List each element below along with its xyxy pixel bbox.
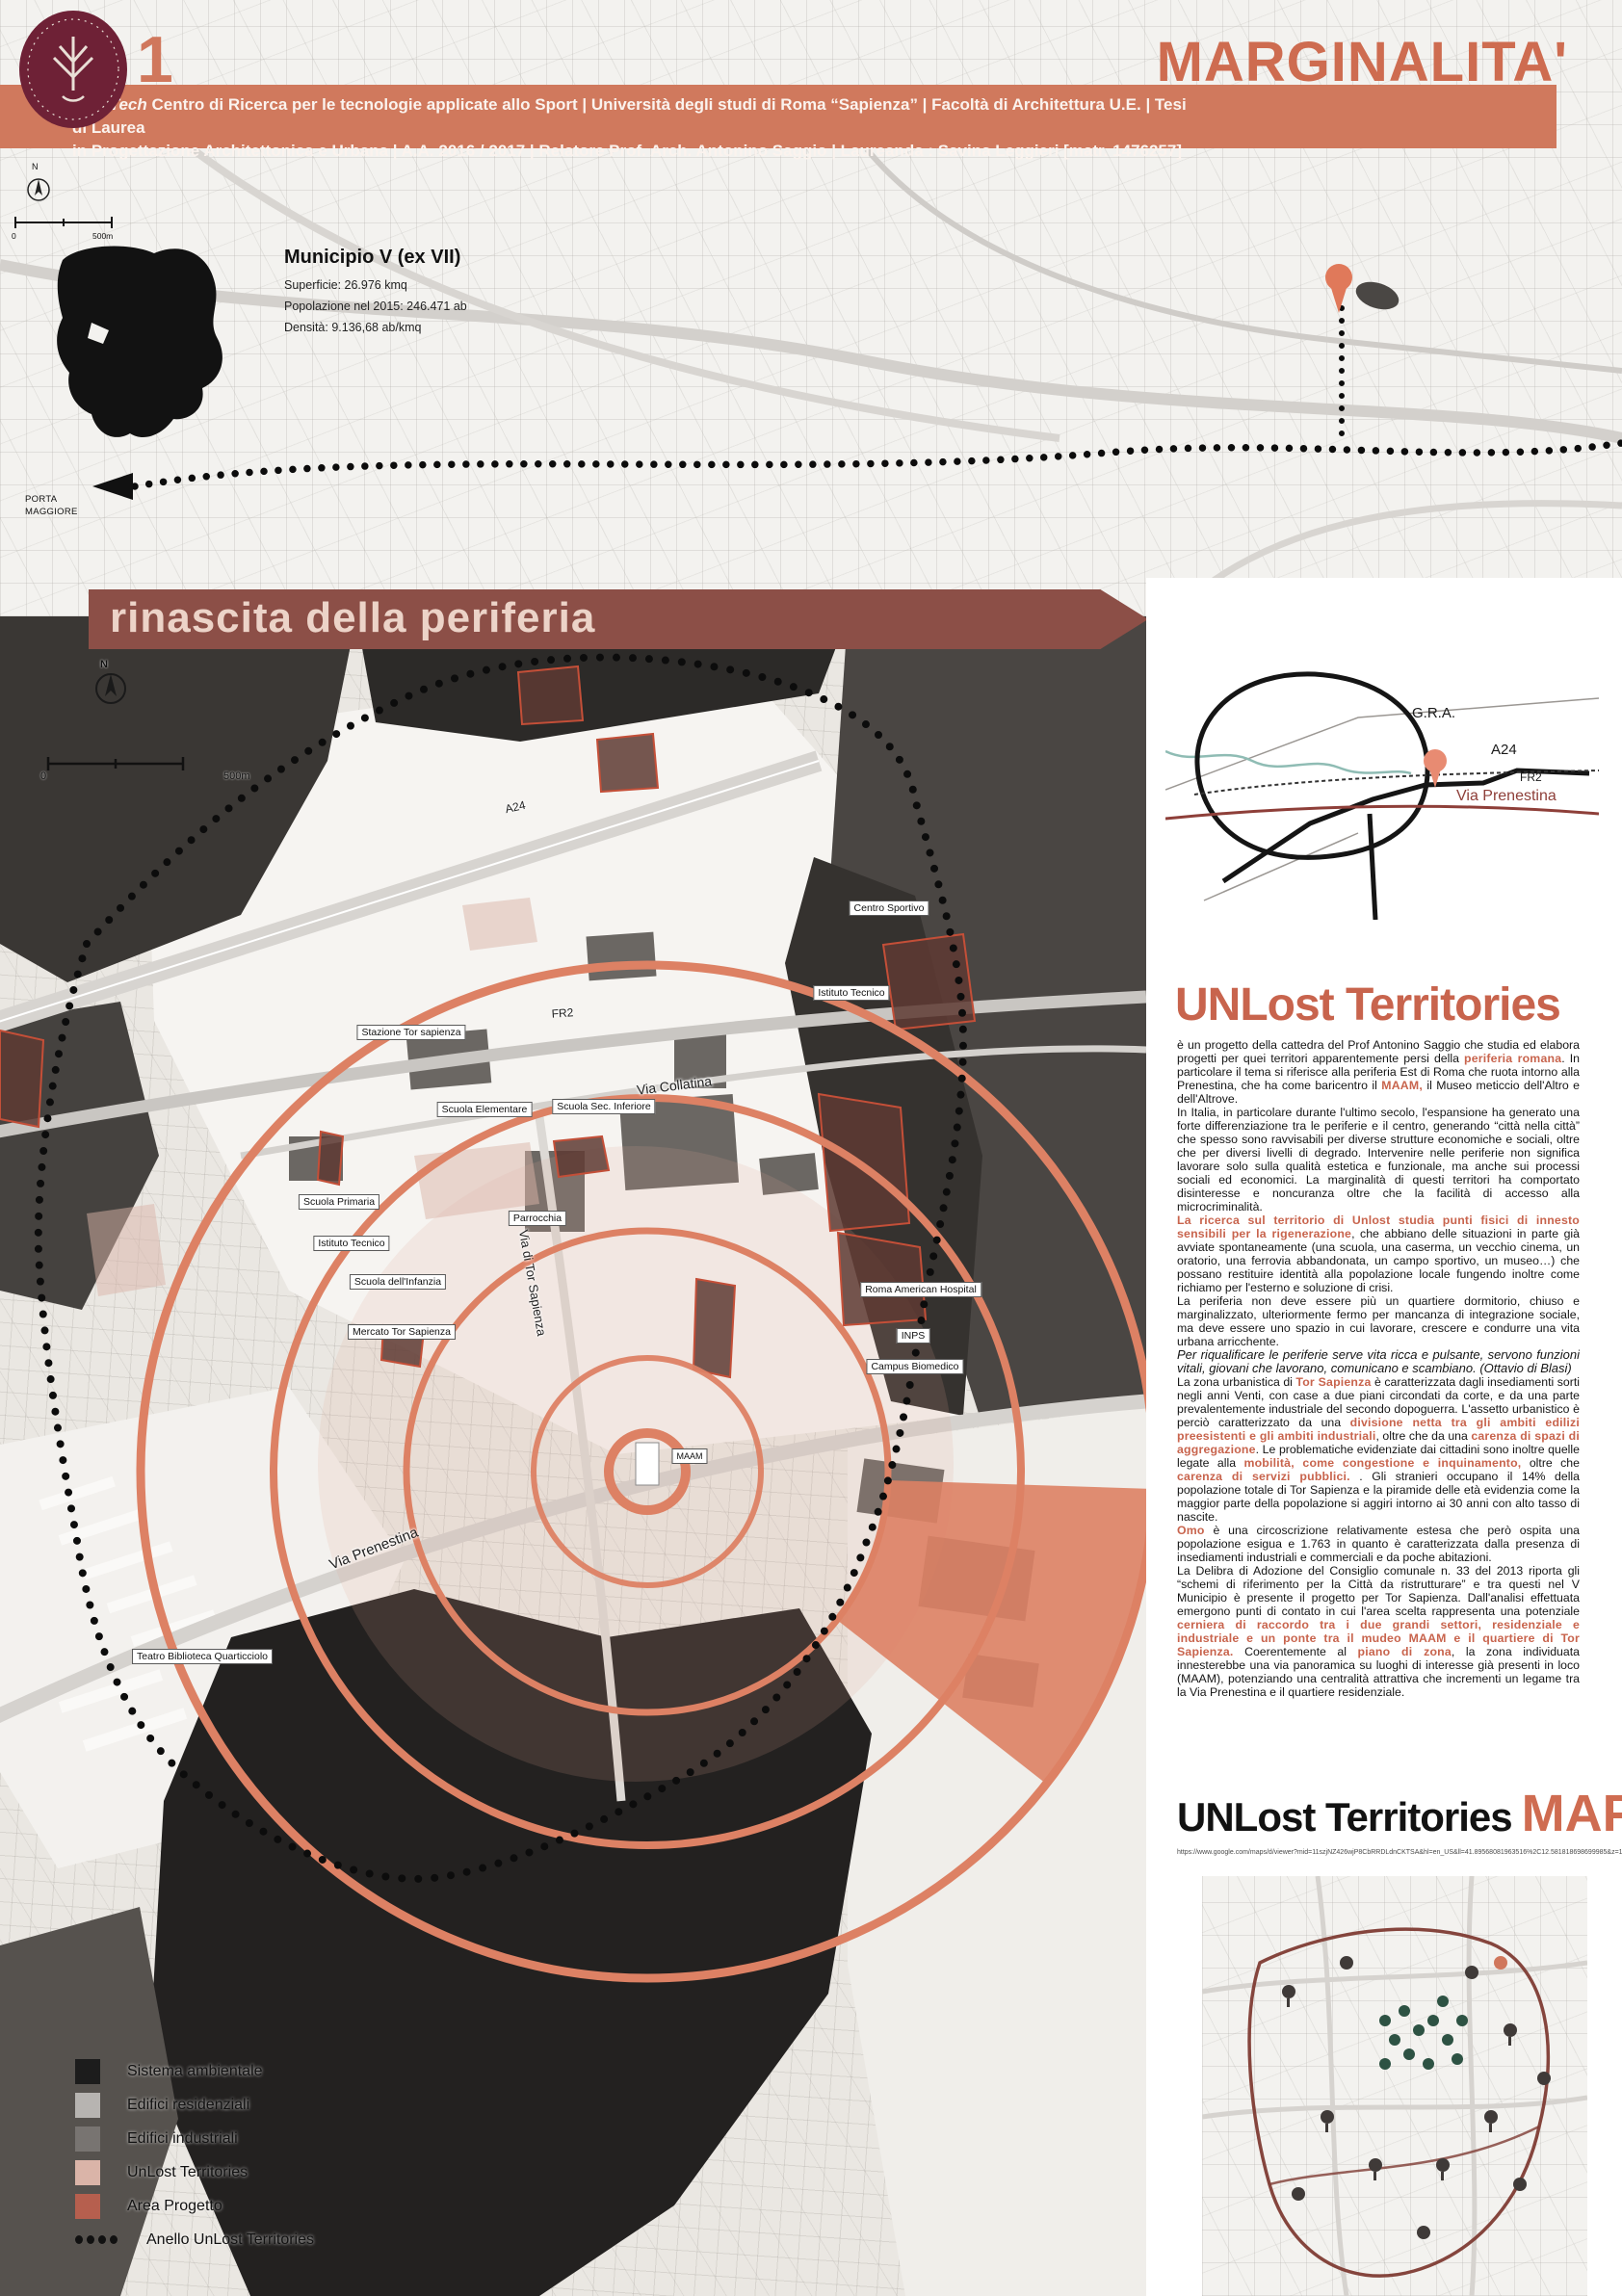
legend-item-edifici-industriali: Edifici industriali [75, 2126, 364, 2152]
main-scale-zero: 0 [40, 770, 46, 782]
legend-swatch-darkgray [75, 2126, 100, 2152]
prenestina-label: Via Prenestina [1456, 788, 1557, 805]
municipio-superficie: Superficie: 26.976 kmq [284, 274, 602, 296]
legend-label: Sistema ambientale [127, 2063, 263, 2080]
municipio-densita: Densità: 9.136,68 ab/kmq [284, 317, 602, 338]
poster-title: MARGINALITA' [1157, 35, 1568, 91]
overview-scale-zero: 0 [12, 231, 16, 241]
gra-ring [1197, 674, 1427, 858]
main-map [0, 616, 1146, 2296]
municipio-title: Municipio V (ex VII) [284, 247, 602, 269]
municipio-v-silhouette [57, 247, 222, 437]
tree-cluster-pins [1379, 1996, 1468, 2070]
legend-label: Edifici industriali [127, 2130, 238, 2148]
map-label-parrocchia: Parrocchia [509, 1211, 566, 1226]
legend-item-area-progetto: Area Progetto [75, 2193, 364, 2219]
map-section-title: UNLost TerritoriesMAP [1177, 1784, 1622, 1843]
map-legend: Sistema ambientale Edifici residenziali … [75, 2058, 364, 2260]
header-band: SporTech Centro di Ricerca per le tecnol… [0, 85, 1557, 148]
river-line [1165, 751, 1411, 773]
unlost-minimap [1202, 1876, 1587, 2296]
porta-maggiore-label: PORTA MAGGIORE [25, 493, 102, 518]
legend-label: Anello UnLost Territories [146, 2231, 314, 2249]
prenestina-line [1165, 806, 1599, 819]
article-title: UNLost Territories [1175, 978, 1560, 1031]
article-body: è un progetto della cattedra del Prof An… [1177, 1038, 1580, 1782]
location-pin-icon [1325, 264, 1352, 291]
map-label-inps: INPS [897, 1328, 930, 1344]
map-label-istituto-tecnico-2: Istituto Tecnico [313, 1236, 389, 1251]
legend-item-sistema-ambientale: Sistema ambientale [75, 2058, 364, 2084]
overview-scale-label: 500m [92, 231, 113, 241]
overview-map [0, 149, 1622, 587]
page-number: 1 [137, 27, 173, 92]
legend-label: Area Progetto [127, 2198, 222, 2215]
map-label-scuola-elementare: Scuola Elementare [437, 1102, 533, 1117]
section-banner: rinascita della periferia [89, 589, 1148, 649]
section-banner-text: rinascita della periferia [89, 589, 1148, 647]
legend-item-unlost-territories: UnLost Territories [75, 2159, 364, 2185]
legend-swatch-pink [75, 2160, 100, 2185]
legend-label: UnLost Territories [127, 2164, 248, 2181]
subtitle-line2: in Progettazione Architettonica e Urbana… [72, 140, 1194, 163]
map-label-maam: MAAM [672, 1448, 708, 1464]
map-label-scuola-infanzia: Scuola dell'Infanzia [350, 1274, 446, 1290]
map-section-title-accent: MAP [1522, 1785, 1622, 1842]
map-label-centro-sportivo: Centro Sportivo [850, 900, 929, 916]
thesis-poster: N 0 500m Municipio V (ex VII) Superficie… [0, 0, 1622, 2296]
legend-label: Edifici residenziali [127, 2097, 249, 2114]
map-label-hospital: Roma American Hospital [860, 1282, 981, 1297]
scale-bar [15, 217, 112, 228]
legend-swatch-brick [75, 2194, 100, 2219]
map-label-teatro-quarticciolo: Teatro Biblioteca Quarticciolo [132, 1649, 273, 1664]
legend-swatch-lightgray [75, 2093, 100, 2118]
legend-dotted-icon [75, 2235, 118, 2244]
legend-item-anello: Anello UnLost Territories [75, 2227, 364, 2253]
overview-north-label: N [32, 162, 39, 171]
sapienza-logo [14, 8, 132, 131]
accent-pin [1494, 1956, 1507, 1970]
legend-item-edifici-residenziali: Edifici residenziali [75, 2092, 364, 2118]
map-section-title-black: UNLost Territories [1177, 1794, 1512, 1839]
map-road-fr2: FR2 [551, 1005, 574, 1021]
map-section-url: https://www.google.com/maps/d/viewer?mid… [1177, 1849, 1620, 1856]
fr2-label: FR2 [1520, 770, 1542, 784]
map-label-stazione: Stazione Tor sapienza [356, 1025, 465, 1040]
municipio-stats: Municipio V (ex VII) Superficie: 26.976 … [284, 247, 602, 338]
anello-dotted-line [135, 443, 1622, 486]
header-subtitle: SporTech Centro di Ricerca per le tecnol… [72, 93, 1194, 163]
map-label-scuola-sec: Scuola Sec. Inferiore [552, 1099, 655, 1114]
main-map-graphics [0, 616, 1146, 2296]
gra-label: G.R.A. [1412, 705, 1455, 721]
legend-swatch-black [75, 2059, 100, 2084]
main-scale-label: 500m [223, 770, 250, 782]
map-label-scuola-primaria: Scuola Primaria [299, 1194, 379, 1210]
subtitle-line1-rest: Centro di Ricerca per le tecnologie appl… [72, 95, 1187, 137]
map-label-istituto-tecnico-1: Istituto Tecnico [813, 985, 889, 1001]
a24-label: A24 [1491, 742, 1517, 758]
dark-area-blob [1352, 277, 1402, 315]
main-north-label: N [100, 659, 108, 670]
municipio-popolazione: Popolazione nel 2015: 246.471 ab [284, 296, 602, 317]
maam-building [636, 1443, 659, 1485]
subtitle-line1: SporTech Centro di Ricerca per le tecnol… [72, 93, 1194, 140]
unlost-minimap-graphics [1202, 1876, 1587, 2296]
map-label-campus-biomedico: Campus Biomedico [866, 1359, 963, 1374]
map-label-mercato: Mercato Tor Sapienza [348, 1324, 456, 1340]
